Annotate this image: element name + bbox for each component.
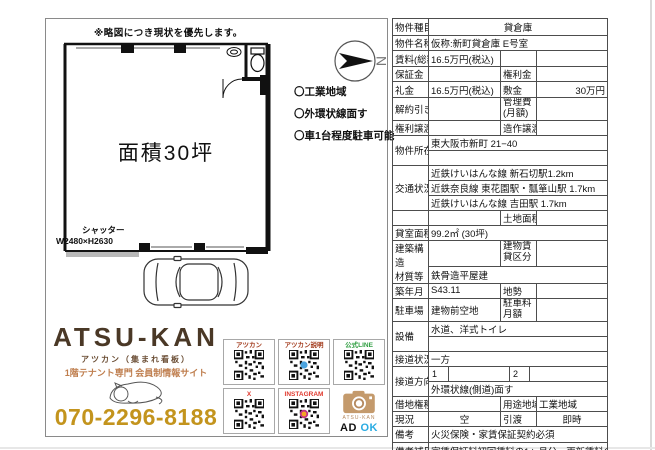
value-location: 東大阪市新町 21−40 bbox=[429, 135, 608, 150]
qr-code-icon bbox=[289, 350, 319, 380]
cell-empty bbox=[429, 240, 501, 266]
value-deposit bbox=[429, 67, 501, 82]
value-rent: 16.5万円(税込) bbox=[429, 51, 501, 67]
road-direction-subcells: 1 2 bbox=[429, 366, 608, 381]
car-drawing bbox=[144, 257, 248, 308]
label-zoning: 用途地域 bbox=[501, 396, 537, 411]
label-property-type: 物件種目 bbox=[393, 19, 429, 36]
value-mgmt-fee bbox=[537, 98, 608, 121]
label-parking: 駐車場 bbox=[393, 298, 429, 321]
door-arc bbox=[223, 79, 242, 98]
bullet-zoning: 〇工業地域 bbox=[294, 81, 394, 103]
label-room-area: 貸室面積 bbox=[393, 225, 429, 240]
label-remarks: 備考 bbox=[393, 426, 429, 442]
bullet-road: 〇外環状線面す bbox=[294, 103, 394, 125]
value-structure: 鉄骨造平屋建 bbox=[429, 266, 608, 283]
label-leasehold: 借地権種類 bbox=[393, 396, 429, 411]
plan-note: ※略図につき現状を優先します。 bbox=[94, 25, 243, 39]
camera-icon bbox=[340, 389, 378, 415]
value-property-type: 貸倉庫 bbox=[429, 19, 608, 36]
compass-n: N bbox=[373, 56, 386, 66]
cell-empty bbox=[393, 210, 429, 225]
label-deposit: 保証金 bbox=[393, 67, 429, 82]
qr-line: 公式LINE bbox=[333, 339, 385, 385]
value-terrain bbox=[537, 283, 608, 298]
cell-empty bbox=[537, 51, 608, 67]
value-handover: 即時 bbox=[537, 411, 608, 426]
label-built: 築年月 bbox=[393, 283, 429, 298]
value-land-area bbox=[537, 210, 608, 225]
plan-area-label: 面積30坪 bbox=[66, 137, 266, 167]
bullet-parking: 〇車1台程度駐車可能 bbox=[294, 125, 394, 147]
shutter-name: シャッター bbox=[82, 225, 125, 236]
label-parking-fee: 駐車料 月額 bbox=[501, 298, 537, 321]
value-property-name: 仮称:新町貸倉庫 E号室 bbox=[429, 36, 608, 51]
value-road-note: 外環状線(側道)面す bbox=[429, 381, 608, 396]
value-facilities: 水道、洋式トイレ bbox=[429, 321, 608, 336]
label-terrain: 地勢 bbox=[501, 283, 537, 298]
listing-sheet: N ※略図につき現状を優先します。 面積30坪 シャッター W2480×H263… bbox=[0, 0, 655, 450]
label-rights-transfer: 権利譲渡 bbox=[393, 120, 429, 135]
cell-empty bbox=[501, 51, 537, 67]
label-location: 物件所在 bbox=[393, 135, 429, 165]
qr-setsumei-label: アツカン説明 bbox=[285, 341, 324, 350]
property-table: 物件種目 貸倉庫 物件名称 仮称:新町貸倉庫 E号室 賃料(総額) 16.5万円… bbox=[392, 18, 608, 450]
qr-grid: アツカン アツカン説明 公式LINE X INSTAGRAM bbox=[223, 339, 385, 434]
value-road-contact: 一方 bbox=[429, 351, 608, 366]
value-rights-transfer bbox=[429, 120, 501, 135]
label-road-contact: 接道状況 bbox=[393, 351, 429, 366]
label-road-direction: 接道方向等 bbox=[393, 366, 429, 396]
qr-atsukan-setsumei: アツカン説明 bbox=[278, 339, 330, 385]
shutter-bar bbox=[66, 252, 139, 257]
label-rent: 賃料(総額) bbox=[393, 51, 429, 67]
value-zoning: 工業地域 bbox=[537, 396, 608, 411]
value-remarks: 火災保険・家賃保証契約必須 bbox=[429, 426, 608, 442]
value-parking-fee bbox=[537, 298, 608, 321]
value-current: 空 bbox=[429, 411, 501, 426]
qr-atsukan-label: アツカン bbox=[236, 341, 262, 350]
label-handover: 引渡 bbox=[501, 411, 537, 426]
label-cancel: 解約引き bbox=[393, 98, 429, 121]
value-room-area: 99.2㎡ (30坪) bbox=[429, 225, 608, 240]
label-property-name: 物件名称 bbox=[393, 36, 429, 51]
qr-code-icon bbox=[289, 399, 319, 429]
label-key-money: 権利金 bbox=[501, 67, 537, 82]
brand-logo-text: ATSU-KAN bbox=[46, 322, 226, 353]
ok-text: OK bbox=[360, 422, 378, 434]
qr-x: X bbox=[223, 388, 275, 434]
label-land-area: 土地面積 bbox=[501, 210, 537, 225]
ad-ok-cell: ATSU-KAN AD OK bbox=[333, 388, 385, 434]
road-dir-1: 1 bbox=[429, 367, 449, 381]
value-parking: 建物前空地 bbox=[429, 298, 501, 321]
label-fixtures-transfer: 造作譲渡 bbox=[501, 120, 537, 135]
brand-kana: アツカン（集まれ看板） bbox=[46, 354, 226, 365]
cell-empty bbox=[429, 210, 501, 225]
sleeping-pet-sketch bbox=[98, 377, 174, 407]
value-shikikin: 30万円 bbox=[537, 82, 608, 98]
label-mgmt-fee: 管理費 (月額) bbox=[501, 98, 537, 121]
camera-caption: ATSU-KAN bbox=[343, 415, 376, 422]
road-dir-1-value bbox=[449, 367, 510, 381]
qr-atsukan: アツカン bbox=[223, 339, 275, 385]
value-remarks-sub: 家賃保証料初回賃料の1ヶ月分・更新賃料の10%1年更新 bbox=[429, 442, 608, 450]
qr-x-label: X bbox=[247, 390, 251, 399]
label-reikin: 礼金 bbox=[393, 82, 429, 98]
qr-instagram: INSTAGRAM bbox=[278, 388, 330, 434]
value-key-money bbox=[537, 67, 608, 82]
label-building-class: 建物賃 貸区分 bbox=[501, 240, 537, 266]
qr-instagram-label: INSTAGRAM bbox=[285, 390, 324, 399]
qr-line-label: 公式LINE bbox=[345, 341, 373, 350]
value-built: S43.11 bbox=[429, 283, 501, 298]
label-remarks-sub: 備考補足 bbox=[393, 442, 429, 450]
photo-edge-right bbox=[650, 0, 652, 450]
shutter-size: W2480×H2630 bbox=[56, 236, 125, 247]
label-facilities: 設備 bbox=[393, 321, 429, 351]
road-dir-2-value bbox=[530, 367, 607, 381]
phone-number: 070-2296-8188 bbox=[46, 404, 226, 431]
qr-code-icon bbox=[234, 350, 264, 380]
qr-code-icon bbox=[344, 350, 374, 380]
shutter-label: シャッター W2480×H2630 bbox=[56, 225, 125, 247]
road-dir-2: 2 bbox=[510, 367, 530, 381]
value-reikin: 16.5万円(税込) bbox=[429, 82, 501, 98]
value-fixtures-transfer bbox=[537, 120, 608, 135]
ad-ok-text: AD OK bbox=[340, 422, 378, 434]
label-transport: 交通状況 bbox=[393, 165, 429, 210]
label-shikikin: 敷金 bbox=[501, 82, 537, 98]
value-facilities-2 bbox=[429, 336, 608, 351]
qr-code-icon bbox=[234, 399, 264, 429]
value-cancel bbox=[429, 98, 501, 121]
ad-text: AD bbox=[340, 422, 357, 434]
label-structure: 建築構造 材質等 bbox=[393, 240, 429, 283]
value-location-2 bbox=[429, 150, 608, 165]
floorplan-panel: N ※略図につき現状を優先します。 面積30坪 シャッター W2480×H263… bbox=[45, 18, 388, 437]
compass-icon: N bbox=[335, 41, 386, 81]
value-leasehold bbox=[429, 396, 501, 411]
value-transport-1: 近鉄けいはんな線 新石切駅1.2km bbox=[429, 165, 608, 180]
value-transport-2: 近鉄奈良線 東花園駅・瓢箪山駅 1.7km bbox=[429, 180, 608, 195]
value-building-class bbox=[537, 240, 608, 266]
value-transport-3: 近鉄けいはんな線 吉田駅 1.7km bbox=[429, 195, 608, 210]
label-current: 現況 bbox=[393, 411, 429, 426]
feature-bullets: 〇工業地域 〇外環状線面す 〇車1台程度駐車可能 bbox=[294, 81, 394, 147]
